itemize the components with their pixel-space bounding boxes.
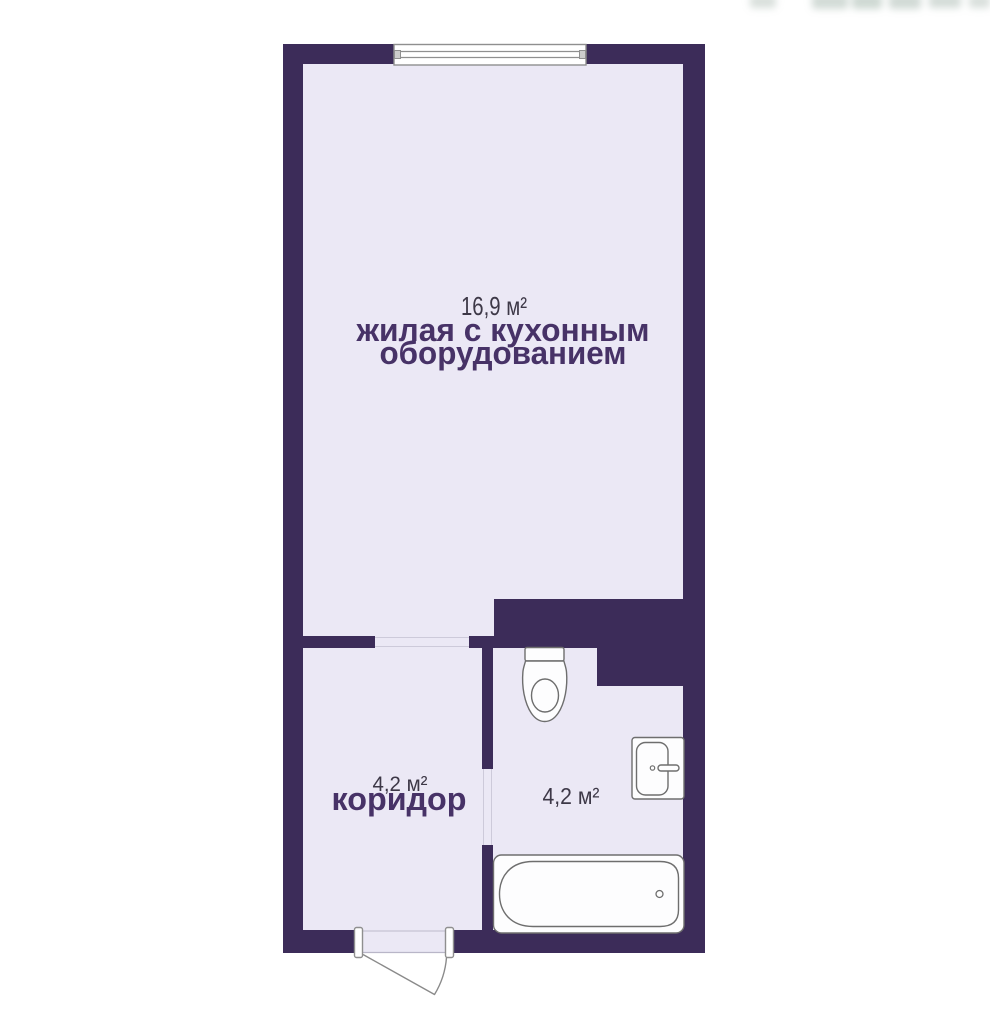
svg-text:оборудованием: оборудованием	[380, 335, 627, 371]
svg-text:коридор: коридор	[332, 781, 467, 817]
svg-text:4,2 м²: 4,2 м²	[543, 783, 600, 809]
